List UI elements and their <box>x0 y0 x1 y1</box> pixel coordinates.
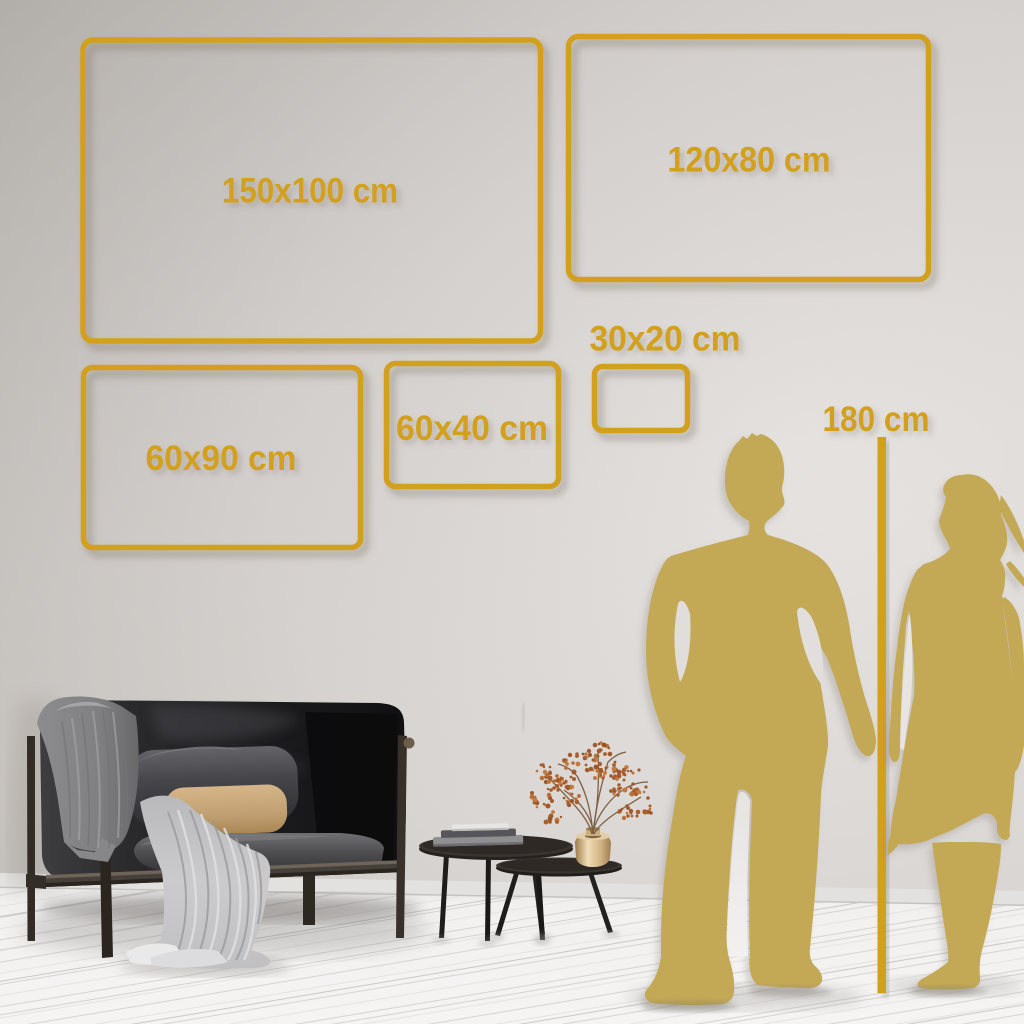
svg-text:150x100 cm: 150x100 cm <box>222 172 398 211</box>
svg-text:180 cm: 180 cm <box>823 400 930 439</box>
svg-text:60x40 cm: 60x40 cm <box>396 409 548 448</box>
svg-text:120x80 cm: 120x80 cm <box>668 141 831 180</box>
svg-text:60x90 cm: 60x90 cm <box>146 439 297 478</box>
svg-text:30x20 cm: 30x20 cm <box>590 320 741 359</box>
